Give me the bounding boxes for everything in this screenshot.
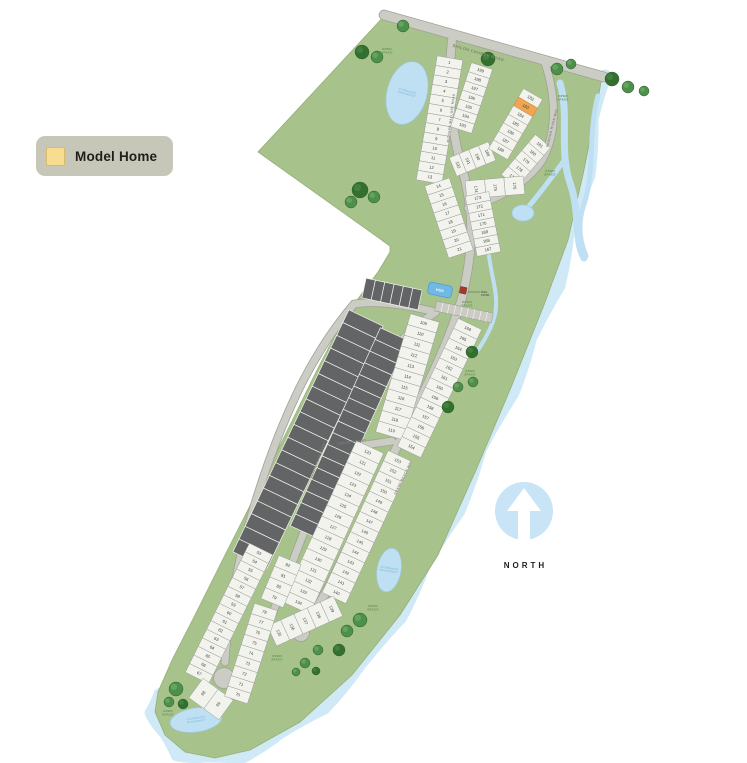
tree-icon [333,644,345,656]
lot-number-174: 174 [473,185,479,193]
tree-icon [551,63,563,75]
legend-label: Model Home [75,149,157,164]
tree-icon [468,377,478,387]
tree-icon [368,191,380,203]
tree-icon [353,613,367,627]
north-label: NORTH [492,561,556,570]
tree-icon [164,697,174,707]
tree-icon [345,196,357,208]
north-arrow-icon [492,480,556,554]
open-space-label: OPENSPACE [367,604,379,611]
tree-icon [313,645,323,655]
open-space-label: OPENSPACE [464,369,476,376]
tree-icon [397,20,409,32]
open-space-label: OPENSPACE [162,709,174,716]
tree-icon [300,658,310,668]
tree-icon [178,699,188,709]
lot-number-175: 175 [493,184,499,192]
tree-icon [341,625,353,637]
open-space-label: OPENSPACE [544,169,556,176]
tree-icon [312,667,320,675]
open-space-label: OPENSPACE [271,654,283,661]
tree-icon [453,382,463,392]
north-indicator: NORTH [492,480,556,570]
tree-icon [442,401,454,413]
open-space-label: OPENSPACE [381,47,393,54]
tree-icon [169,682,183,696]
tree-icon [605,72,619,86]
pond [512,205,534,221]
lot-number-176: 176 [512,182,518,190]
site-map: STORMWATERMANAGEMENTSTORMWATERMANAGEMENT… [0,0,747,763]
tree-icon [352,182,368,198]
map-legend: Model Home [36,136,173,176]
mail-kiosk-icon [459,286,467,294]
tree-icon [622,81,634,93]
tree-icon [566,59,576,69]
open-space-label: OPENSPACE [461,300,473,307]
tree-icon [292,668,300,676]
tree-icon [355,45,369,59]
tree-icon [466,346,478,358]
site-plan-page: STORMWATERMANAGEMENTSTORMWATERMANAGEMENT… [0,0,747,763]
open-space-label: OPENSPACE [557,94,569,101]
tree-icon [639,86,649,96]
model-home-swatch [46,147,65,166]
